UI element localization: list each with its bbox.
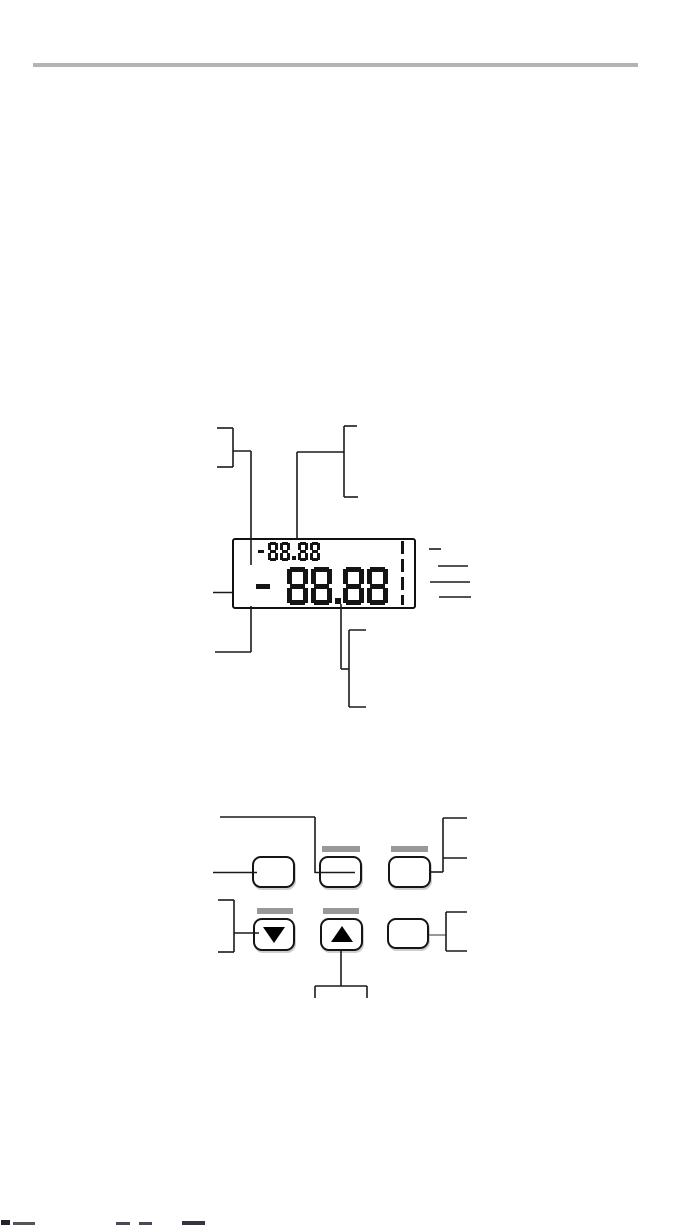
- lcd-callout-bottom-left: [215, 606, 251, 652]
- lcd-callout-bottom-middle: [341, 604, 366, 707]
- lcd-callout-top-right: [297, 426, 358, 539]
- keypad-callout-up-button: [315, 951, 367, 998]
- keypad-callout-down-button: [218, 900, 259, 952]
- manual-page: [0, 0, 673, 1225]
- callout-lines: [0, 0, 673, 1225]
- keypad-callout-bottom-right: [429, 912, 467, 951]
- lcd-callout-top-left: [217, 428, 251, 565]
- clipped-footer-text: [0, 1218, 673, 1225]
- keypad-callout-top-middle: [220, 817, 355, 873]
- keypad-callout-top-right: [431, 818, 467, 872]
- lcd-callout-right-ticks: [429, 549, 471, 597]
